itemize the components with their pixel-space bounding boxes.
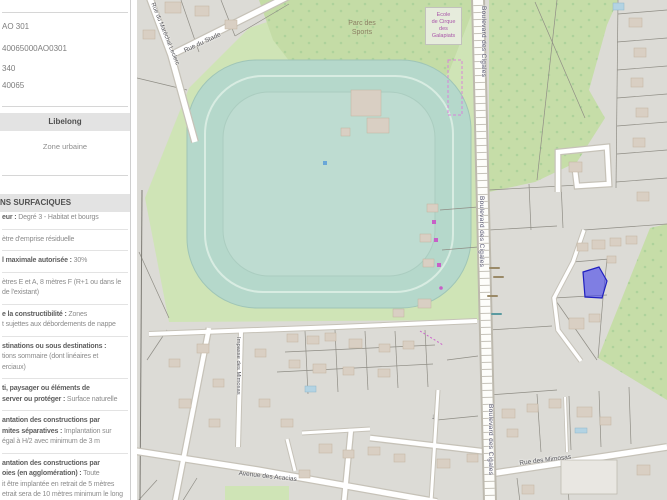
insee-code: 40065 [2, 81, 128, 90]
divider [2, 12, 128, 13]
divider [2, 272, 128, 273]
rule-line: ètre d'emprise résiduelle [2, 235, 128, 245]
parcel-code: 40065000AO0301 [2, 44, 128, 53]
rule-line: server ou protéger : Surface naturelle [2, 395, 128, 405]
rule-line: e la constructibilité : Zones [2, 310, 128, 320]
rule-line: eur : Degré 3 - Habitat et bourgs [2, 213, 128, 223]
poi-micro-label [487, 295, 498, 297]
divider [2, 106, 128, 107]
map-canvas[interactable]: Rue du Maréchal Leclerc Rue du Stade Par… [137, 0, 667, 500]
shop-icon [432, 220, 436, 224]
water-poi-icon [323, 161, 327, 165]
rule-line: oies (en agglomération) : Toute [2, 469, 128, 479]
rule-line: ti, paysager ou éléments de [2, 384, 128, 394]
rule-line: de l'existant) [2, 288, 128, 298]
poi-label-ecole-cirque: Ecole de Cirque des Galapiats [432, 12, 456, 40]
divider [2, 304, 128, 305]
rule-line: erciaux) [2, 363, 128, 373]
rule-line: antation des constructions par [2, 459, 128, 469]
divider [2, 336, 128, 337]
shop-icon [439, 286, 443, 290]
divider [2, 378, 128, 379]
map-base-layer [137, 0, 667, 500]
rule-line: stinations ou sous destinations : [2, 342, 128, 352]
stadium-pitch [187, 60, 471, 308]
street-label-boulevard-cigales-top: Boulevard des Cigales [480, 6, 487, 77]
section-header-surfaciques: NS SURFACIQUES [0, 194, 130, 212]
rule-line: etrait sera de 10 mètres minimum le long [2, 490, 128, 500]
rule-line: antation des constructions par [2, 416, 128, 426]
divider [2, 410, 128, 411]
shop-icon [437, 263, 441, 267]
shop-icon [434, 238, 438, 242]
rule-line: égal à H/2 avec minimum de 3 m [2, 437, 128, 447]
divider [2, 250, 128, 251]
rule-line: it être implantée en retrait de 5 mètres [2, 480, 128, 490]
section-header-libelong: Libelong [0, 113, 130, 131]
street-label-impasse-mimosas: Impasse des Mimosas [235, 337, 241, 395]
parcel-area: 340 [2, 64, 128, 73]
park-label-parc-des-sports: Parc des Sports [333, 20, 391, 37]
zone-value: Zone urbaine [2, 142, 128, 151]
poi-box-ecole-cirque: Ecole de Cirque des Galapiats [425, 7, 462, 45]
divider [2, 229, 128, 230]
divider [2, 453, 128, 454]
street-label-boulevard-cigales-bottom: Boulevard des Cigales [487, 404, 494, 475]
street-label-boulevard-cigales-mid: Boulevard des Cigales [478, 196, 485, 267]
rule-line: ètres E et A, 8 mètres F (R+1 ou dans le [2, 278, 128, 288]
oneway-arrow-icon: ↓ [431, 412, 435, 421]
rule-line: tions sommaire (dont linéaires et [2, 352, 128, 362]
rule-line: t sujettes aux débordements de nappe [2, 320, 128, 330]
divider [2, 175, 128, 176]
info-sidebar[interactable]: AO 301 40065000AO0301 340 40065 Libelong… [0, 0, 131, 500]
large-building-block [561, 460, 617, 494]
poi-micro-label [489, 267, 500, 269]
parcel-id: AO 301 [2, 22, 128, 31]
poi-micro-label [493, 276, 504, 278]
rule-line: l maximale autorisée : 30% [2, 256, 128, 266]
rule-line: mites séparatives : Implantation sur [2, 427, 128, 437]
poi-micro-label [491, 313, 502, 315]
